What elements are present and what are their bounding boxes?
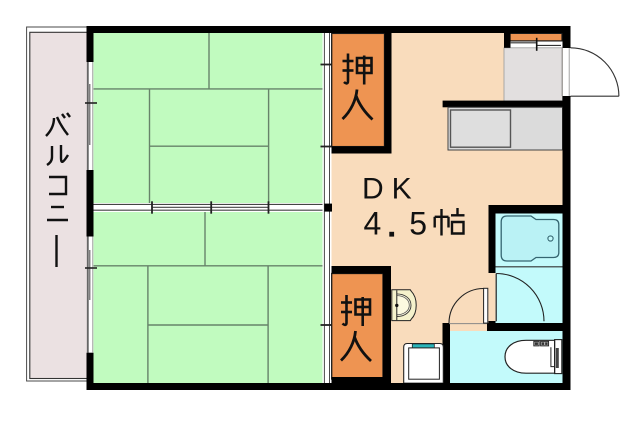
svg-text:DK: DK (362, 173, 420, 206)
